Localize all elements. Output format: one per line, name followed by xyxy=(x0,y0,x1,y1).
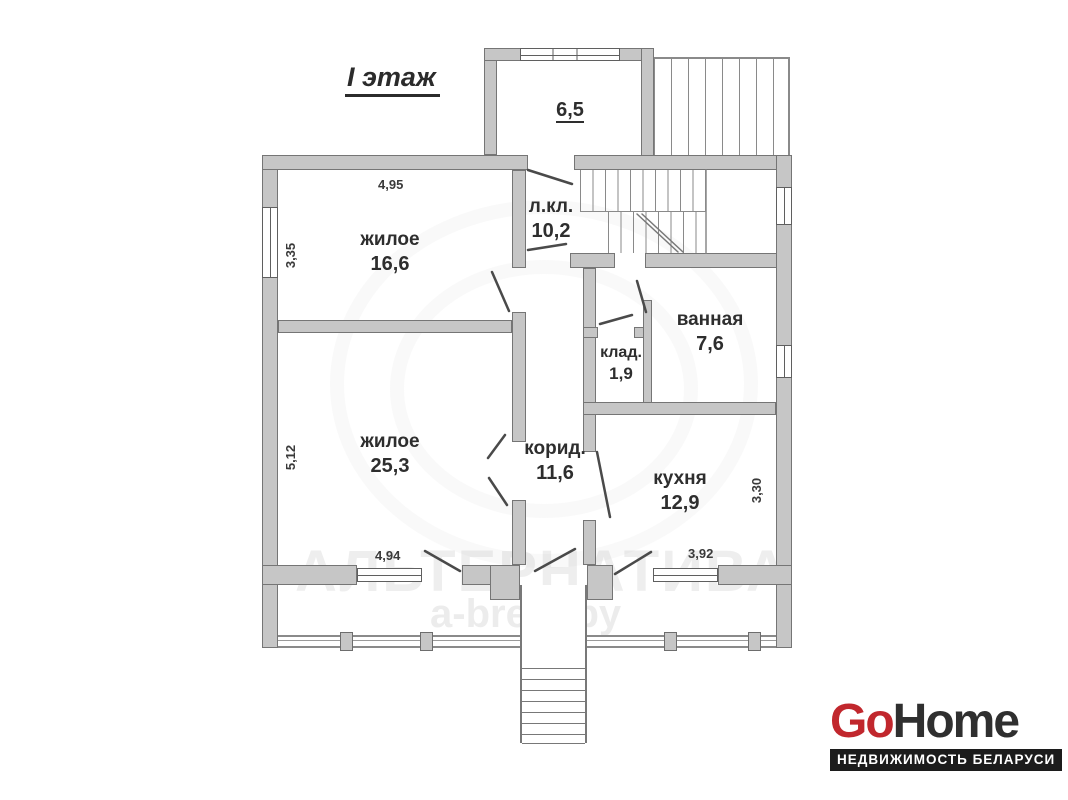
room-label-bathroom: ванная 7,6 xyxy=(655,308,765,357)
name-living166: жилое xyxy=(330,228,450,252)
area-living253: 25,3 xyxy=(330,454,450,479)
room-label-storage: клад. 1,9 xyxy=(592,343,650,384)
door-leaf-living253-upper xyxy=(488,435,505,458)
logo-gohome: GoHome НЕДВИЖИМОСТЬ БЕЛАРУСИ xyxy=(830,698,1062,771)
door-leaf-living253-lower xyxy=(489,478,507,505)
room-label-porch: 6,5 xyxy=(545,98,595,123)
name-corridor: корид. xyxy=(518,437,592,461)
area-storage: 1,9 xyxy=(592,363,650,384)
door-leaf-storage xyxy=(600,315,632,324)
dim-living166-height: 3,35 xyxy=(283,243,298,268)
dim-living253-width: 4,94 xyxy=(375,548,400,563)
area-stairwell: 10,2 xyxy=(515,219,587,244)
door-leaf-veranda-kitchen xyxy=(615,552,651,574)
area-corridor: 11,6 xyxy=(518,461,592,486)
floor-plan-canvas: АЛЬТЕРНАТИВА a-brest.by I этаж xyxy=(0,0,1068,800)
floor-plan: I этаж xyxy=(0,0,1068,800)
door-leaf-veranda-living253 xyxy=(425,551,460,571)
dim-living253-height: 5,12 xyxy=(283,445,298,470)
stairs-break-line-1 xyxy=(637,214,678,252)
door-leaf-veranda-corridor xyxy=(535,549,575,571)
logo-tagline: НЕДВИЖИМОСТЬ БЕЛАРУСИ xyxy=(830,749,1062,771)
logo-gohome-text: GoHome xyxy=(830,698,1062,746)
door-leaf-bathroom xyxy=(637,281,646,312)
room-label-stairwell: л.кл. 10,2 xyxy=(515,195,587,244)
name-kitchen: кухня xyxy=(625,467,735,491)
room-label-living253: жилое 25,3 xyxy=(330,430,450,479)
area-living166: 16,6 xyxy=(330,252,450,277)
room-label-living166: жилое 16,6 xyxy=(330,228,450,277)
name-bathroom: ванная xyxy=(655,308,765,332)
name-stairwell: л.кл. xyxy=(515,195,587,219)
logo-home: Home xyxy=(893,695,1018,748)
door-leaf-living166 xyxy=(492,272,509,311)
area-kitchen: 12,9 xyxy=(625,491,735,516)
door-leaf-entrance xyxy=(528,170,572,184)
name-living253: жилое xyxy=(330,430,450,454)
door-leaf-kitchen xyxy=(597,452,610,517)
area-porch: 6,5 xyxy=(556,99,584,123)
dim-kitchen-width: 3,92 xyxy=(688,546,713,561)
dim-kitchen-height: 3,30 xyxy=(749,478,764,503)
room-label-kitchen: кухня 12,9 xyxy=(625,467,735,516)
dim-living166-width: 4,95 xyxy=(378,177,403,192)
area-bathroom: 7,6 xyxy=(655,332,765,357)
room-label-corridor: корид. 11,6 xyxy=(518,437,592,486)
door-leaf-stairwell xyxy=(528,244,566,250)
stairs-break-line-2 xyxy=(642,214,683,252)
door-swing-overlay xyxy=(0,0,1068,800)
name-storage: клад. xyxy=(592,343,650,363)
logo-go: Go xyxy=(830,695,893,748)
